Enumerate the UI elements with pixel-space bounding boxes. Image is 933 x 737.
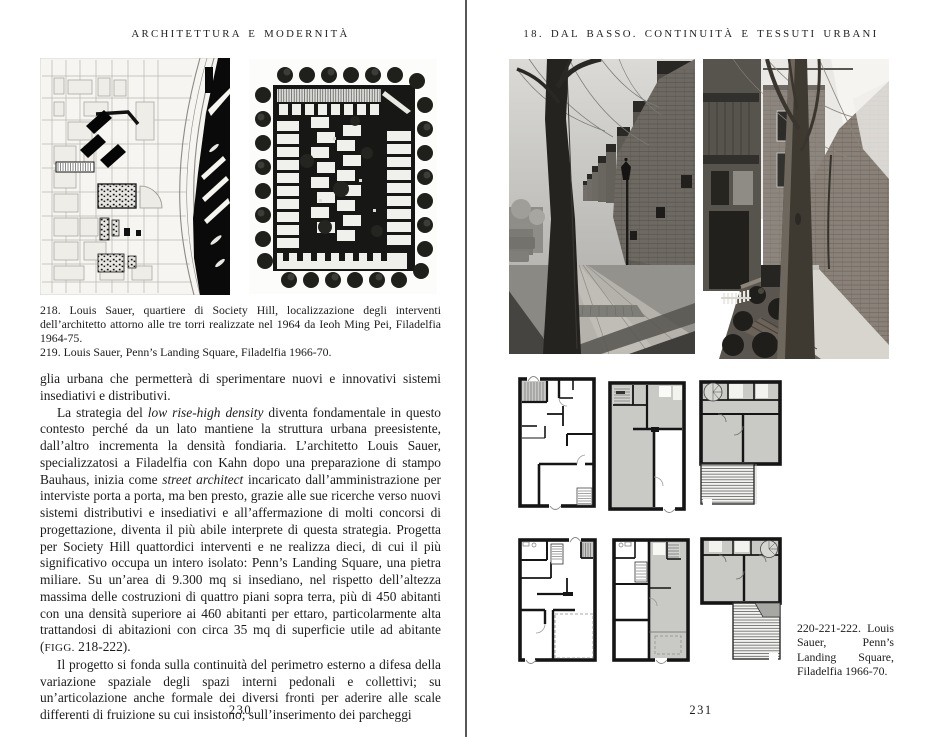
left-page-number: 230 [40,703,441,718]
penns-landing-site-plan-drawing [248,59,438,294]
floor-plan-6 [699,535,784,666]
body-paragraph-1: glia urbana che permetterà di sperimenta… [40,371,441,405]
left-running-head: ARCHITETTURA E MODERNITÀ [40,28,441,40]
floor-plan-4-drawing [517,536,598,664]
right-page-number: 231 [505,703,897,718]
figure-220-street-photo [509,59,695,354]
street-photo-image [509,59,695,354]
caption-219: 219. Louis Sauer, Penn’s Landing Square,… [40,345,441,359]
page-gutter-divider [465,0,467,737]
floor-plan-3-drawing [698,378,784,508]
floor-plan-1 [517,374,597,510]
courtyard-photo-image [703,59,889,359]
body-paragraph-2: La strategia del low rise-high density d… [40,405,441,657]
body-text-column: glia urbana che permetterà di sperimenta… [40,371,441,724]
paragraph-2-italic-1: low rise-high density [148,405,264,420]
right-running-head: 18. DAL BASSO. CONTINUITÀ E TESSUTI URBA… [505,28,897,40]
floor-plan-5-drawing [611,536,691,664]
paragraph-2-italic-2: street architect [162,472,243,487]
paragraph-2-text-1: La strategia del [57,405,148,420]
paragraph-2-text-3: incaricato dall’amministrazione per inte… [40,472,441,655]
figure-221-courtyard-photo [703,59,889,359]
floor-plan-1-drawing [517,374,597,510]
caption-220-221-222: 220-221-222. Louis Sauer, Penn’s Landing… [797,621,894,678]
society-hill-map-drawing [40,58,230,295]
figure-captions-218-219: 218. Louis Sauer, quartiere di Society H… [40,303,441,359]
paragraph-2-text-4: 218-222). [75,639,131,654]
floor-plan-2-drawing [607,379,687,513]
caption-218: 218. Louis Sauer, quartiere di Society H… [40,303,441,345]
floor-plan-6-drawing [699,535,784,666]
figure-219-site-plan [248,59,438,294]
floor-plan-2 [607,379,687,513]
paragraph-2-figure-ref: FIGG. [44,642,74,654]
floor-plan-5 [611,536,691,664]
book-spread: ARCHITETTURA E MODERNITÀ [0,0,933,737]
floor-plan-3 [698,378,784,508]
floor-plan-4 [517,536,598,664]
figure-218-society-hill-map [40,58,230,295]
left-building [703,59,761,291]
